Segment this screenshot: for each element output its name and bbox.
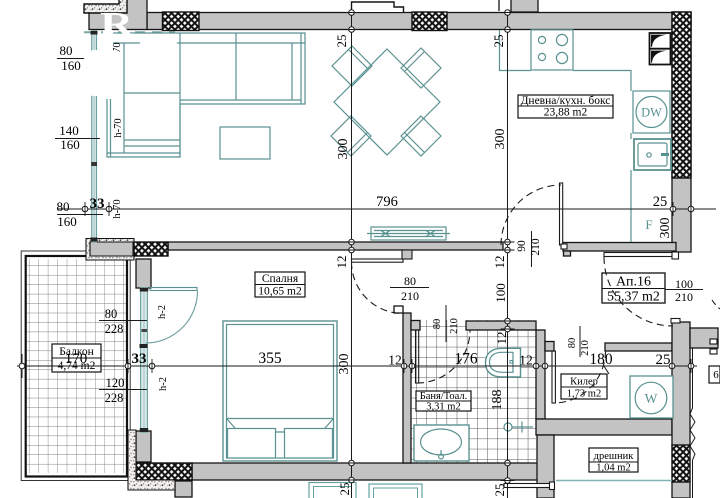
svg-text:210: 210 — [675, 290, 693, 304]
svg-text:h-2: h-2 — [157, 305, 168, 319]
svg-text:DW: DW — [641, 106, 662, 120]
svg-text:300: 300 — [337, 354, 352, 375]
svg-text:80: 80 — [57, 199, 70, 214]
svg-text:Баня/Тоал.: Баня/Тоал. — [420, 391, 468, 402]
svg-text:6: 6 — [713, 369, 719, 381]
svg-text:h-2: h-2 — [158, 377, 169, 391]
svg-text:180: 180 — [589, 351, 613, 368]
svg-text:228: 228 — [105, 322, 124, 336]
svg-text:80: 80 — [432, 319, 443, 330]
svg-text:300: 300 — [336, 139, 351, 160]
svg-text:12: 12 — [388, 353, 402, 368]
svg-text:25: 25 — [337, 483, 352, 496]
svg-text:1,04 m2: 1,04 m2 — [596, 463, 630, 474]
svg-text:90: 90 — [516, 240, 528, 252]
svg-text:160: 160 — [61, 58, 81, 73]
svg-text:120: 120 — [106, 376, 125, 390]
svg-text:228: 228 — [105, 391, 124, 405]
svg-text:210: 210 — [530, 238, 542, 256]
svg-text:25: 25 — [492, 484, 507, 497]
svg-text:12: 12 — [334, 256, 349, 269]
svg-text:160: 160 — [57, 214, 77, 229]
svg-text:3,31 m2: 3,31 m2 — [426, 402, 460, 413]
svg-text:80: 80 — [105, 307, 118, 321]
svg-text:дрешник: дрешник — [594, 451, 635, 462]
svg-text:100: 100 — [493, 283, 508, 303]
svg-text:23,88 m2: 23,88 m2 — [544, 107, 588, 119]
svg-text:210: 210 — [449, 318, 460, 334]
svg-text:W: W — [645, 391, 658, 406]
svg-text:55,37 m2: 55,37 m2 — [607, 290, 660, 305]
svg-text:100: 100 — [675, 277, 693, 291]
svg-text:12: 12 — [494, 332, 509, 345]
svg-text:25: 25 — [656, 352, 671, 368]
svg-text:210: 210 — [401, 289, 419, 303]
svg-text:33: 33 — [90, 196, 105, 212]
svg-text:80: 80 — [567, 338, 578, 349]
svg-text:188: 188 — [490, 390, 505, 411]
svg-text:80: 80 — [404, 274, 416, 288]
svg-text:12: 12 — [519, 353, 533, 368]
svg-text:355: 355 — [258, 350, 282, 367]
svg-text:Дневна/кухн. бокс: Дневна/кухн. бокс — [521, 95, 611, 107]
svg-text:25: 25 — [334, 35, 349, 48]
svg-text:210: 210 — [580, 340, 591, 356]
svg-text:300: 300 — [658, 218, 673, 239]
svg-text:33: 33 — [132, 351, 147, 367]
svg-text:170: 170 — [65, 351, 88, 367]
svg-text:300: 300 — [493, 129, 508, 150]
svg-text:h-70: h-70 — [112, 199, 123, 218]
svg-text:h-70: h-70 — [113, 118, 124, 137]
svg-text:25: 25 — [653, 194, 668, 210]
svg-text:25: 25 — [491, 35, 506, 48]
svg-text:Спалня: Спалня — [262, 273, 299, 285]
svg-text:796: 796 — [376, 194, 398, 210]
svg-text:160: 160 — [60, 137, 80, 152]
svg-text:1,73 m2: 1,73 m2 — [567, 389, 601, 400]
svg-text:F: F — [645, 217, 652, 232]
svg-text:10,65 m2: 10,65 m2 — [258, 286, 302, 298]
svg-text:176: 176 — [454, 351, 478, 368]
svg-text:80: 80 — [60, 43, 73, 58]
svg-text:12: 12 — [492, 256, 507, 269]
svg-text:140: 140 — [59, 123, 79, 138]
svg-text:Килер: Килер — [570, 377, 598, 388]
svg-text:Ап.16: Ап.16 — [616, 275, 651, 290]
